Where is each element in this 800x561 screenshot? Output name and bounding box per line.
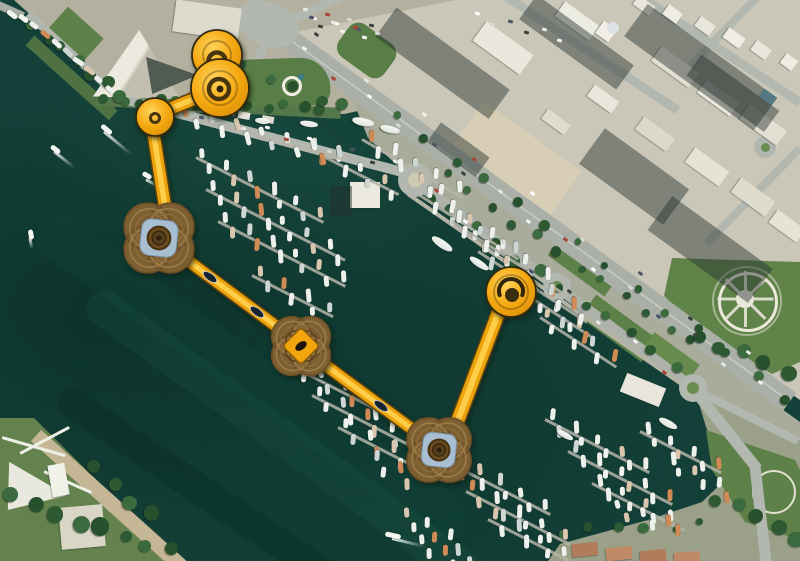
platform-north [124,203,194,273]
satellite-map [0,0,800,561]
walkway-platforms [124,203,471,482]
pavilion-east [486,267,536,317]
pavilion-west [136,98,174,136]
walkway-bridges [153,94,502,440]
platform-mid [272,317,331,376]
pavilion-figure8-lower [191,59,249,117]
bridge-east-south [452,303,502,436]
walkway-overlay [0,0,800,561]
platform-south [407,418,471,482]
